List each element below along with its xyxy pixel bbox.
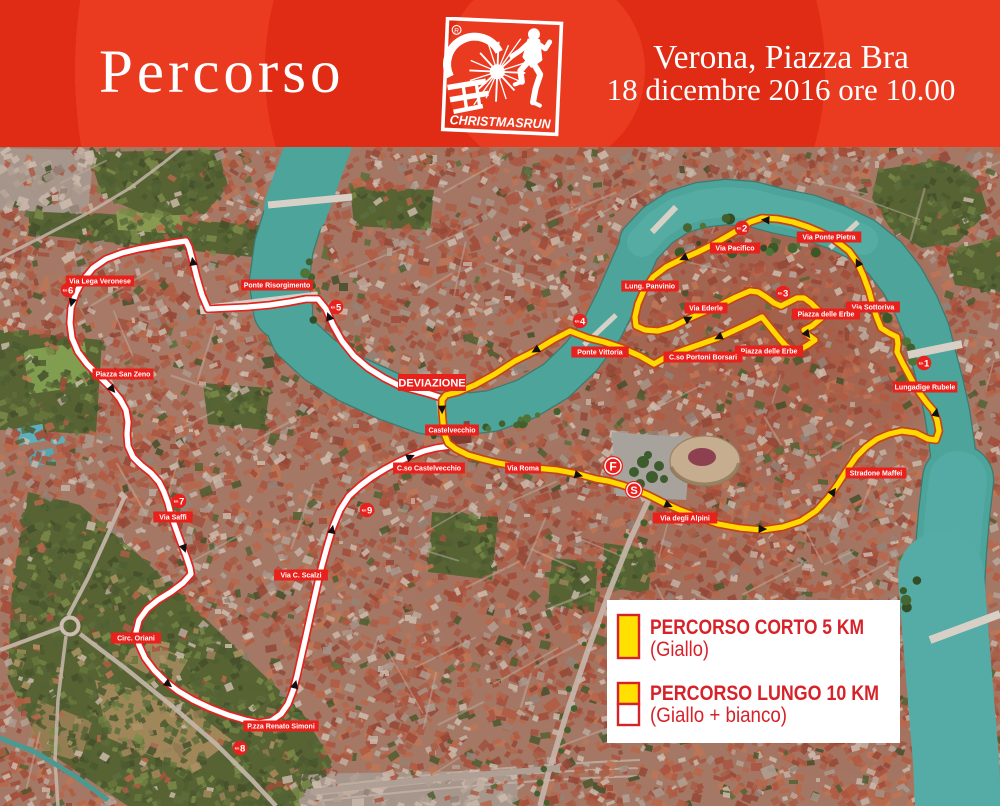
svg-text:(Giallo + bianco): (Giallo + bianco) [650,704,787,727]
svg-text:PERCORSO CORTO 5 KM: PERCORSO CORTO 5 KM [650,615,864,639]
svg-text:DEVIAZIONE: DEVIAZIONE [398,378,465,390]
svg-text:km: km [575,320,580,324]
svg-text:Via Saffi: Via Saffi [159,515,187,522]
svg-text:Via Roma: Via Roma [507,466,539,473]
svg-text:Via Lega Veronese: Via Lega Veronese [69,279,131,286]
svg-text:Piazza San Zeno: Piazza San Zeno [96,372,151,379]
svg-text:R: R [454,28,459,35]
svg-text:Via Ederle: Via Ederle [689,306,723,313]
svg-text:7: 7 [179,496,184,507]
svg-text:3: 3 [783,288,788,299]
svg-text:km: km [919,362,924,366]
svg-text:F: F [609,460,616,474]
svg-text:Piazza delle Erbe: Piazza delle Erbe [741,349,798,356]
svg-text:km: km [174,500,179,504]
svg-text:km: km [737,227,742,231]
svg-text:Ponte Risorgimento: Ponte Risorgimento [244,283,311,290]
svg-text:5: 5 [336,302,342,313]
svg-text:Castelvecchio: Castelvecchio [428,428,475,435]
svg-text:C.so Portoni Borsari: C.so Portoni Borsari [669,355,737,362]
svg-text:9: 9 [367,505,372,516]
svg-text:Via degli Alpini: Via degli Alpini [660,516,710,523]
svg-text:Lungadige Rubele: Lungadige Rubele [895,385,956,392]
svg-text:Stradone Maffei: Stradone Maffei [850,471,903,478]
svg-text:Via Pacifico: Via Pacifico [715,246,754,253]
svg-text:C.so Castelvecchio: C.so Castelvecchio [397,466,461,473]
svg-text:Via C. Scalzi: Via C. Scalzi [280,573,321,580]
svg-text:1: 1 [924,358,930,369]
svg-text:km: km [235,747,240,751]
svg-text:6: 6 [68,285,73,296]
svg-text:P.zza Renato Simoni: P.zza Renato Simoni [247,724,315,731]
svg-text:2: 2 [742,223,747,234]
svg-text:PERCORSO LUNGO 10 KM: PERCORSO LUNGO 10 KM [650,681,879,705]
svg-text:km: km [778,292,783,296]
svg-text:Piazza delle Erbe: Piazza delle Erbe [798,312,855,319]
svg-text:8: 8 [240,743,245,754]
svg-text:km: km [331,306,336,310]
svg-text:4: 4 [580,316,586,327]
svg-text:Via Ponte Pietra: Via Ponte Pietra [802,235,855,242]
svg-text:km: km [63,289,68,293]
svg-text:(Giallo): (Giallo) [650,638,709,661]
svg-text:Circ. Oriani: Circ. Oriani [117,636,155,643]
svg-text:S: S [630,485,637,497]
svg-text:Ponte Vittoria: Ponte Vittoria [577,350,622,357]
svg-text:Lung. Panvinio: Lung. Panvinio [625,284,675,291]
svg-text:km: km [362,509,367,513]
